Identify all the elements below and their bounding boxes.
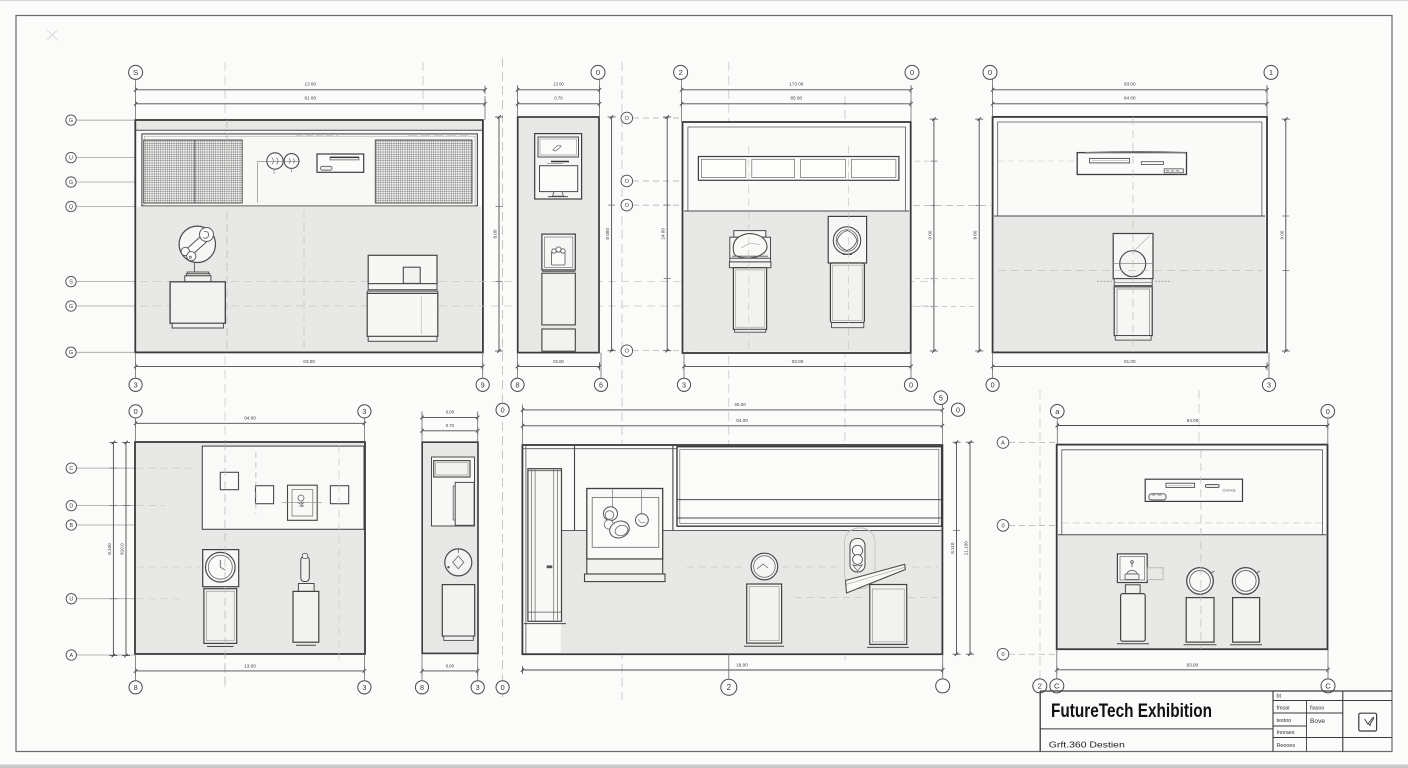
svg-text:03.00: 03.00 <box>792 359 804 364</box>
svg-text:0: 0 <box>134 407 138 416</box>
svg-text:8 000: 8 000 <box>605 228 610 240</box>
svg-text:2: 2 <box>678 68 682 77</box>
svg-text:0 00: 0 00 <box>927 230 932 239</box>
svg-text:85 00: 85 00 <box>791 96 803 101</box>
svg-text:2: 2 <box>1038 682 1042 691</box>
svg-text:0: 0 <box>501 683 505 692</box>
svg-text:G: G <box>69 118 73 124</box>
svg-text:0: 0 <box>991 380 995 389</box>
svg-text:3: 3 <box>362 683 366 692</box>
svg-text:0: 0 <box>988 68 992 77</box>
svg-text:9 00: 9 00 <box>1279 230 1284 239</box>
svg-text:0.00: 0.00 <box>446 410 455 415</box>
svg-text:Inoraes: Inoraes <box>1277 730 1295 736</box>
svg-text:0: 0 <box>1001 523 1004 529</box>
svg-text:13 00: 13 00 <box>553 82 564 87</box>
svg-text:40.00: 40.00 <box>734 402 746 407</box>
svg-text:13.00: 13.00 <box>244 664 256 669</box>
svg-text:S: S <box>133 68 138 77</box>
svg-text:G: G <box>69 304 73 310</box>
svg-text:3: 3 <box>476 683 480 692</box>
svg-text:U: U <box>69 156 73 162</box>
svg-text:173 00: 173 00 <box>789 82 803 87</box>
svg-text:9: 9 <box>481 380 485 389</box>
svg-text:3: 3 <box>682 380 686 389</box>
svg-text:61 00: 61 00 <box>305 96 317 101</box>
svg-text:C: C <box>69 466 73 472</box>
svg-text:0: 0 <box>1326 407 1330 416</box>
svg-text:O: O <box>625 203 630 209</box>
svg-text:03.00: 03.00 <box>303 359 315 364</box>
svg-text:21.100: 21.100 <box>964 541 969 555</box>
svg-text:24 00: 24 00 <box>661 228 666 240</box>
svg-text:C: C <box>1054 682 1060 691</box>
svg-text:93 00: 93 00 <box>1124 82 1136 87</box>
svg-text:FutureTech Exhibition: FutureTech Exhibition <box>1051 700 1212 722</box>
svg-text:C: C <box>1325 682 1331 691</box>
svg-text:84 00: 84 00 <box>1124 96 1136 101</box>
svg-text:G: G <box>69 350 73 356</box>
svg-text:Q: Q <box>69 204 73 210</box>
svg-text:0: 0 <box>501 406 505 415</box>
svg-text:U: U <box>69 597 73 603</box>
svg-text:610.0: 610.0 <box>120 543 125 555</box>
svg-text:9 60: 9 60 <box>973 230 978 239</box>
svg-text:3: 3 <box>134 380 138 389</box>
svg-text:A: A <box>69 653 73 659</box>
svg-text:testoo: testoo <box>1277 718 1292 724</box>
svg-text:8.100: 8.100 <box>107 543 112 555</box>
svg-text:2: 2 <box>727 683 732 692</box>
svg-text:18.00: 18.00 <box>736 663 748 668</box>
svg-text:D: D <box>69 504 73 510</box>
svg-text:5: 5 <box>939 393 943 402</box>
svg-text:04.00: 04.00 <box>244 416 256 421</box>
svg-text:93.00: 93.00 <box>1187 662 1199 667</box>
svg-text:0.00: 0.00 <box>446 664 455 669</box>
svg-text:84.00: 84.00 <box>1187 418 1199 423</box>
svg-text:0: 0 <box>1001 652 1004 658</box>
svg-text:3: 3 <box>362 407 366 416</box>
svg-text:fmsar: fmsar <box>1277 706 1291 712</box>
svg-text:O: O <box>625 179 630 185</box>
svg-text:B: B <box>69 523 73 529</box>
svg-text:0: 0 <box>956 405 960 414</box>
svg-text:Reooes: Reooes <box>1277 743 1296 749</box>
svg-text:Cmmds: Cmmds <box>1222 489 1235 493</box>
svg-text:8.110: 8.110 <box>950 542 955 554</box>
svg-text:04.00: 04.00 <box>736 418 748 423</box>
svg-text:0: 0 <box>596 68 600 77</box>
svg-text:02.00: 02.00 <box>553 359 564 364</box>
svg-text:0: 0 <box>909 380 913 389</box>
svg-text:0.70: 0.70 <box>554 96 563 101</box>
svg-text:O: O <box>625 349 630 355</box>
svg-text:13 00: 13 00 <box>305 82 317 87</box>
svg-text:01.00: 01.00 <box>1124 359 1136 364</box>
svg-text:S: S <box>69 280 73 286</box>
svg-text:8: 8 <box>420 683 424 692</box>
svg-text:1: 1 <box>1269 68 1273 77</box>
svg-text:bt: bt <box>1277 694 1282 700</box>
svg-text:6: 6 <box>599 380 603 389</box>
svg-text:0: 0 <box>910 68 914 77</box>
svg-text:8: 8 <box>134 683 138 692</box>
svg-text:Grft.360 Destien: Grft.360 Destien <box>1049 741 1126 750</box>
svg-text:O: O <box>625 116 630 122</box>
svg-text:8: 8 <box>515 380 519 389</box>
svg-text:3: 3 <box>1267 380 1271 389</box>
svg-text:Bove: Bove <box>1310 718 1325 725</box>
svg-text:8.00: 8.00 <box>493 229 498 238</box>
svg-text:fiasoo: fiasoo <box>1310 706 1324 712</box>
svg-text:A: A <box>1001 441 1005 447</box>
svg-text:G: G <box>69 180 73 186</box>
svg-text:0.70: 0.70 <box>446 423 455 428</box>
